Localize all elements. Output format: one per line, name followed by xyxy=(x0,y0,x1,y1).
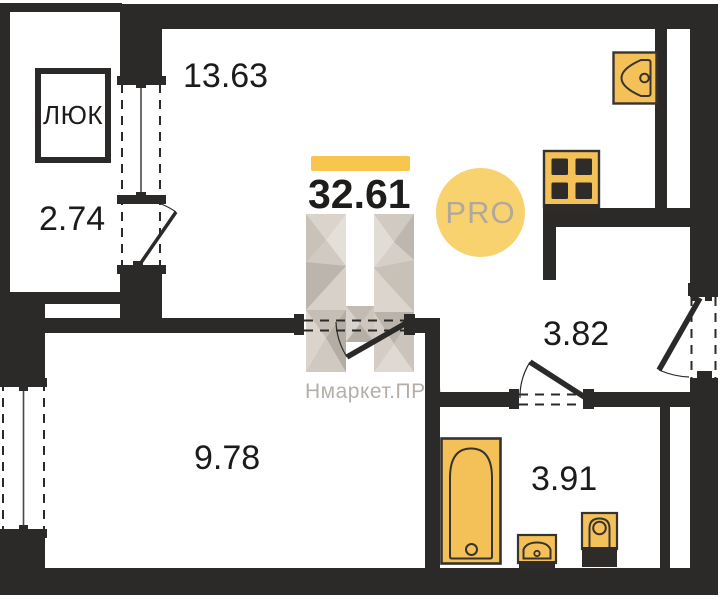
wall xyxy=(690,378,718,595)
toilet-icon xyxy=(582,513,617,567)
total-area-accent-bar xyxy=(311,156,410,171)
door-jamb xyxy=(691,378,718,392)
wall xyxy=(690,4,718,297)
wall xyxy=(425,392,515,407)
window-sill xyxy=(0,378,47,387)
room-door-opening-dash xyxy=(304,321,404,331)
door-jamb xyxy=(705,295,712,301)
kitchen-sink-icon xyxy=(614,53,657,104)
wall xyxy=(425,318,440,595)
door-jamb xyxy=(509,389,519,409)
wall xyxy=(0,318,304,333)
area-label-balcony: 2.74 xyxy=(39,202,105,236)
area-label-bathroom: 3.91 xyxy=(531,462,597,496)
entry-door-swing xyxy=(659,298,700,377)
wall xyxy=(120,28,162,78)
area-label-hallway: 3.82 xyxy=(543,317,609,351)
hatch-label: ЛЮК xyxy=(43,100,103,131)
door-jamb xyxy=(294,314,304,335)
window-sill xyxy=(117,76,166,85)
wall xyxy=(590,392,693,407)
door-jamb xyxy=(691,295,698,301)
door-jamb xyxy=(697,371,712,379)
wall xyxy=(543,227,556,280)
wall xyxy=(0,3,10,302)
pro-badge: PRO xyxy=(436,168,525,257)
balcony-door-swing xyxy=(138,204,176,267)
logo-h-icon xyxy=(306,214,414,372)
area-label-living-kitchen: 13.63 xyxy=(183,59,268,93)
area-label-room: 9.78 xyxy=(194,441,260,475)
wall xyxy=(660,400,670,570)
room-door-swing xyxy=(336,322,408,357)
wall xyxy=(655,28,667,210)
stove-icon xyxy=(544,151,599,213)
wall xyxy=(120,273,162,321)
entry-door-opening-dash xyxy=(692,297,716,378)
bath-door-swing xyxy=(520,362,586,398)
bath-door-opening-dash xyxy=(519,395,583,405)
hatch-box: ЛЮК xyxy=(35,68,111,163)
wall xyxy=(0,3,122,12)
sink-icon xyxy=(518,535,556,569)
wall xyxy=(543,208,690,227)
pro-badge-label: PRO xyxy=(445,195,515,231)
bathtub-icon xyxy=(442,439,501,564)
wall xyxy=(0,568,718,595)
total-area-label: 32.61 xyxy=(308,174,411,215)
window-sill xyxy=(117,195,166,204)
wall xyxy=(0,300,45,380)
wall xyxy=(120,4,718,29)
wall xyxy=(0,536,45,595)
brand-text: Нмаркет.ПРО xyxy=(305,380,442,404)
floor-plan: PRO xyxy=(0,0,722,600)
